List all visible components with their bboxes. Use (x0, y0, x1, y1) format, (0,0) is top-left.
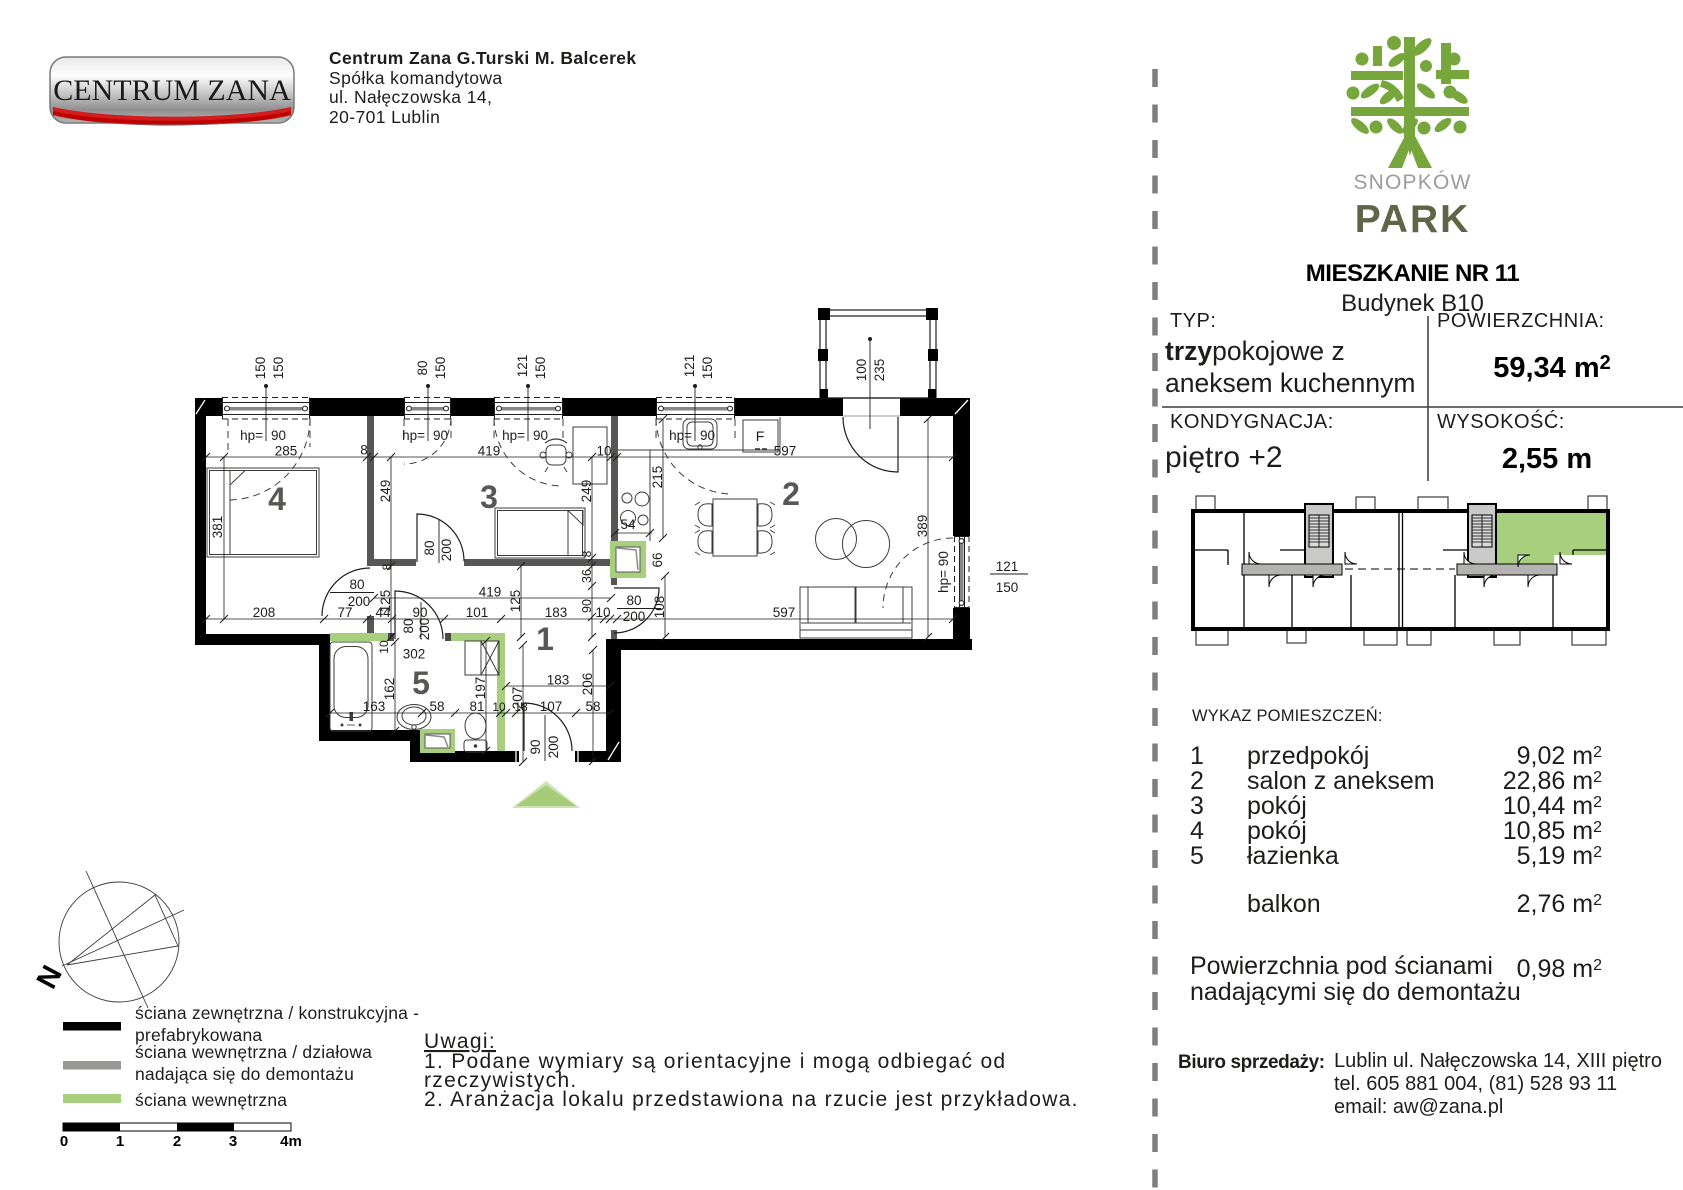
svg-text:81: 81 (469, 699, 484, 714)
svg-text:183: 183 (547, 673, 570, 688)
svg-text:ściana wewnętrzna: ściana wewnętrzna (135, 1090, 287, 1110)
svg-text:197: 197 (473, 677, 488, 700)
svg-text:108: 108 (652, 596, 667, 619)
svg-text:36: 36 (580, 569, 594, 583)
svg-text:4: 4 (268, 481, 286, 517)
svg-text:100: 100 (854, 359, 869, 382)
svg-text:80: 80 (422, 540, 437, 555)
svg-text:58: 58 (429, 699, 444, 714)
svg-text:597: 597 (774, 444, 797, 459)
svg-text:1: 1 (536, 621, 554, 657)
svg-text:249: 249 (378, 480, 393, 503)
svg-text:150: 150 (996, 580, 1019, 595)
svg-text:235: 235 (872, 359, 887, 382)
svg-text:90: 90 (433, 428, 448, 443)
svg-text:150: 150 (700, 357, 715, 380)
svg-text:80: 80 (349, 577, 364, 592)
svg-text:183: 183 (545, 605, 568, 620)
svg-text:3: 3 (480, 479, 498, 515)
svg-text:0: 0 (60, 1133, 68, 1150)
svg-text:ściana wewnętrzna / działowa: ściana wewnętrzna / działowa (135, 1042, 372, 1062)
svg-text:66: 66 (650, 552, 665, 567)
svg-text:200: 200 (348, 594, 371, 609)
svg-text:125: 125 (378, 590, 393, 613)
svg-text:249: 249 (579, 480, 594, 503)
svg-text:150: 150 (253, 357, 268, 380)
svg-text:5: 5 (412, 665, 430, 701)
svg-text:hp=: hp= (502, 428, 525, 443)
svg-text:90: 90 (533, 428, 548, 443)
svg-text:208: 208 (253, 605, 276, 620)
svg-text:1: 1 (116, 1133, 124, 1150)
svg-text:10: 10 (595, 605, 610, 620)
svg-text:8: 8 (360, 443, 368, 458)
svg-text:90: 90 (700, 428, 715, 443)
svg-text:80: 80 (401, 618, 416, 633)
svg-text:8: 8 (580, 550, 594, 557)
svg-text:90: 90 (528, 739, 543, 754)
svg-text:150: 150 (433, 357, 448, 380)
svg-text:121: 121 (515, 355, 530, 378)
svg-text:101: 101 (466, 605, 489, 620)
svg-text:4m: 4m (280, 1133, 302, 1150)
svg-text:200: 200 (417, 618, 432, 641)
svg-text:419: 419 (478, 444, 501, 459)
svg-text:389: 389 (915, 515, 930, 538)
svg-text:58: 58 (585, 699, 600, 714)
svg-text:200: 200 (546, 736, 561, 759)
svg-text:381: 381 (210, 516, 225, 539)
svg-text:206: 206 (580, 673, 595, 696)
svg-text:10: 10 (377, 640, 391, 654)
svg-text:hp=: hp= (240, 428, 263, 443)
svg-text:150: 150 (533, 357, 548, 380)
svg-text:F: F (756, 428, 765, 444)
svg-text:419: 419 (479, 585, 502, 600)
svg-text:3: 3 (229, 1133, 237, 1150)
svg-text:2: 2 (173, 1133, 181, 1150)
svg-text:285: 285 (275, 444, 298, 459)
svg-text:90: 90 (580, 599, 594, 613)
svg-text:10: 10 (492, 700, 506, 714)
svg-text:ściana zewnętrzna / konstrukcy: ściana zewnętrzna / konstrukcyjna - (135, 1003, 419, 1023)
svg-text:125: 125 (508, 590, 523, 613)
svg-text:80: 80 (626, 593, 641, 608)
svg-text:121: 121 (996, 559, 1019, 574)
svg-text:2: 2 (782, 476, 800, 512)
svg-text:162: 162 (382, 678, 397, 701)
svg-text:215: 215 (650, 466, 665, 489)
svg-text:121: 121 (682, 355, 697, 378)
svg-text:2. Aranżacja lokalu przedstawi: 2. Aranżacja lokalu przedstawiona na rzu… (424, 1088, 1079, 1111)
svg-text:597: 597 (773, 605, 796, 620)
svg-text:hp=: hp= (669, 428, 692, 443)
svg-text:207: 207 (510, 687, 525, 710)
svg-text:302: 302 (403, 647, 426, 662)
svg-text:80: 80 (415, 360, 430, 375)
svg-text:8: 8 (380, 563, 394, 570)
svg-text:90: 90 (271, 428, 286, 443)
svg-text:54: 54 (620, 517, 636, 532)
svg-text:107: 107 (540, 699, 563, 714)
svg-text:200: 200 (439, 539, 454, 562)
svg-text:150: 150 (271, 357, 286, 380)
svg-text:hp= 90: hp= 90 (936, 551, 951, 593)
svg-text:200: 200 (623, 609, 646, 624)
svg-text:10: 10 (596, 444, 611, 459)
svg-text:nadająca się do demontażu: nadająca się do demontażu (135, 1064, 354, 1084)
svg-text:hp=: hp= (402, 428, 425, 443)
